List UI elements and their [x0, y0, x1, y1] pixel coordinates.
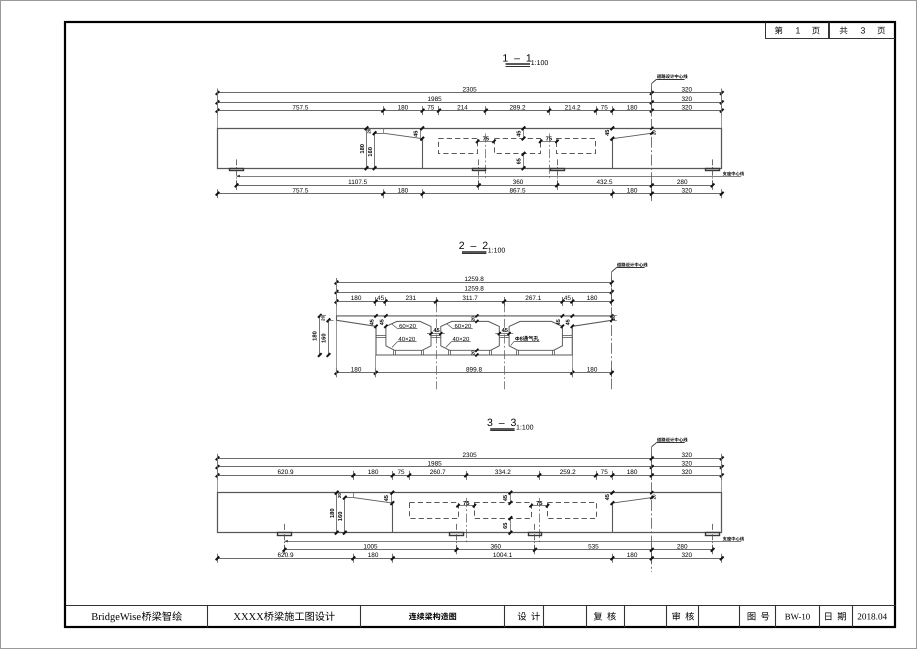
- svg-text:180: 180: [312, 331, 319, 341]
- svg-text:1 – 1: 1 – 1: [502, 53, 533, 65]
- svg-text:180: 180: [627, 187, 638, 194]
- svg-text:320: 320: [681, 552, 692, 559]
- svg-text:45: 45: [564, 295, 572, 302]
- svg-text:535: 535: [588, 544, 599, 551]
- svg-text:360: 360: [490, 544, 501, 551]
- svg-text:867.5: 867.5: [510, 187, 526, 194]
- svg-text:320: 320: [681, 469, 692, 476]
- svg-text:45: 45: [369, 319, 375, 325]
- svg-text:180: 180: [398, 187, 409, 194]
- svg-text:20: 20: [337, 493, 342, 498]
- svg-text:45: 45: [605, 494, 611, 500]
- svg-text:1259.8: 1259.8: [464, 286, 484, 293]
- svg-text:320: 320: [681, 96, 692, 103]
- svg-text:60×20: 60×20: [454, 323, 472, 330]
- svg-text:180: 180: [351, 367, 362, 374]
- svg-text:1985: 1985: [427, 96, 442, 103]
- svg-text:1259.8: 1259.8: [464, 276, 484, 283]
- svg-text:20: 20: [470, 350, 475, 355]
- svg-text:180: 180: [587, 367, 598, 374]
- svg-text:1985: 1985: [427, 461, 442, 468]
- svg-text:320: 320: [681, 187, 692, 194]
- svg-text:20: 20: [321, 315, 326, 320]
- svg-text:45: 45: [503, 495, 509, 501]
- svg-text:280: 280: [677, 544, 688, 551]
- svg-text:75: 75: [601, 469, 609, 476]
- svg-text:20: 20: [651, 494, 656, 499]
- svg-text:180: 180: [627, 104, 638, 111]
- svg-text:320: 320: [681, 461, 692, 468]
- svg-text:2305: 2305: [462, 87, 477, 94]
- svg-text:160: 160: [367, 147, 374, 157]
- svg-text:BridgeWise: BridgeWise: [91, 612, 141, 623]
- svg-text:20: 20: [470, 316, 475, 321]
- svg-text:311.7: 311.7: [462, 295, 478, 302]
- svg-text:620.9: 620.9: [278, 469, 294, 476]
- svg-text:45: 45: [605, 130, 611, 136]
- svg-text:280: 280: [677, 179, 688, 186]
- svg-text:214.2: 214.2: [565, 104, 581, 111]
- svg-text:2018.04: 2018.04: [857, 611, 887, 621]
- svg-text:75: 75: [601, 104, 609, 111]
- svg-text:3 – 3: 3 – 3: [487, 417, 518, 429]
- svg-text:1: 1: [795, 26, 800, 36]
- svg-text:160: 160: [320, 333, 327, 343]
- svg-text:2 – 2: 2 – 2: [459, 240, 490, 252]
- svg-text:45: 45: [377, 295, 385, 302]
- svg-text:45: 45: [414, 131, 420, 137]
- svg-text:180: 180: [368, 552, 379, 559]
- svg-text:334.2: 334.2: [495, 469, 511, 476]
- svg-text:1:100: 1:100: [516, 425, 534, 432]
- svg-text:20: 20: [611, 315, 616, 320]
- svg-text:360: 360: [513, 179, 524, 186]
- svg-text:757.5: 757.5: [292, 104, 308, 111]
- svg-text:320: 320: [681, 452, 692, 459]
- svg-text:60×20: 60×20: [399, 323, 417, 330]
- svg-text:214: 214: [457, 104, 468, 111]
- svg-text:2305: 2305: [462, 452, 477, 459]
- svg-text:XXXX: XXXX: [233, 612, 264, 623]
- svg-text:180: 180: [398, 104, 409, 111]
- svg-text:180: 180: [627, 552, 638, 559]
- svg-text:75: 75: [427, 104, 435, 111]
- svg-text:65: 65: [516, 158, 522, 164]
- svg-text:1:100: 1:100: [488, 248, 506, 255]
- svg-text:BW-10: BW-10: [785, 611, 811, 621]
- svg-text:289.2: 289.2: [510, 104, 526, 111]
- svg-text:180: 180: [587, 295, 598, 302]
- svg-text:75: 75: [483, 136, 490, 142]
- svg-text:259.2: 259.2: [560, 469, 576, 476]
- svg-text:45: 45: [384, 495, 390, 501]
- svg-text:899.8: 899.8: [466, 367, 482, 374]
- svg-text:45: 45: [566, 319, 572, 325]
- svg-text:180: 180: [368, 469, 379, 476]
- svg-text:757.5: 757.5: [292, 187, 308, 194]
- svg-text:20: 20: [651, 130, 656, 135]
- svg-text:180: 180: [627, 469, 638, 476]
- svg-text:267.1: 267.1: [525, 295, 541, 302]
- svg-text:180: 180: [359, 144, 366, 154]
- svg-text:1004.1: 1004.1: [493, 552, 513, 559]
- svg-text:1005: 1005: [363, 544, 378, 551]
- svg-text:320: 320: [681, 104, 692, 111]
- svg-text:65: 65: [503, 523, 509, 529]
- svg-text:3: 3: [860, 26, 865, 36]
- svg-text:432.5: 432.5: [597, 179, 613, 186]
- svg-text:231: 231: [405, 295, 416, 302]
- svg-text:45: 45: [379, 319, 385, 325]
- svg-text:1:100: 1:100: [531, 60, 549, 67]
- svg-text:180: 180: [329, 508, 336, 518]
- svg-text:45: 45: [516, 131, 522, 137]
- svg-text:45: 45: [556, 319, 562, 325]
- svg-text:1107.5: 1107.5: [348, 179, 368, 186]
- svg-text:260.7: 260.7: [430, 469, 446, 476]
- svg-text:320: 320: [681, 87, 692, 94]
- svg-text:160: 160: [337, 512, 344, 522]
- svg-text:180: 180: [351, 295, 362, 302]
- svg-text:620.9: 620.9: [278, 552, 294, 559]
- svg-text:75: 75: [397, 469, 405, 476]
- svg-text:20: 20: [367, 128, 372, 133]
